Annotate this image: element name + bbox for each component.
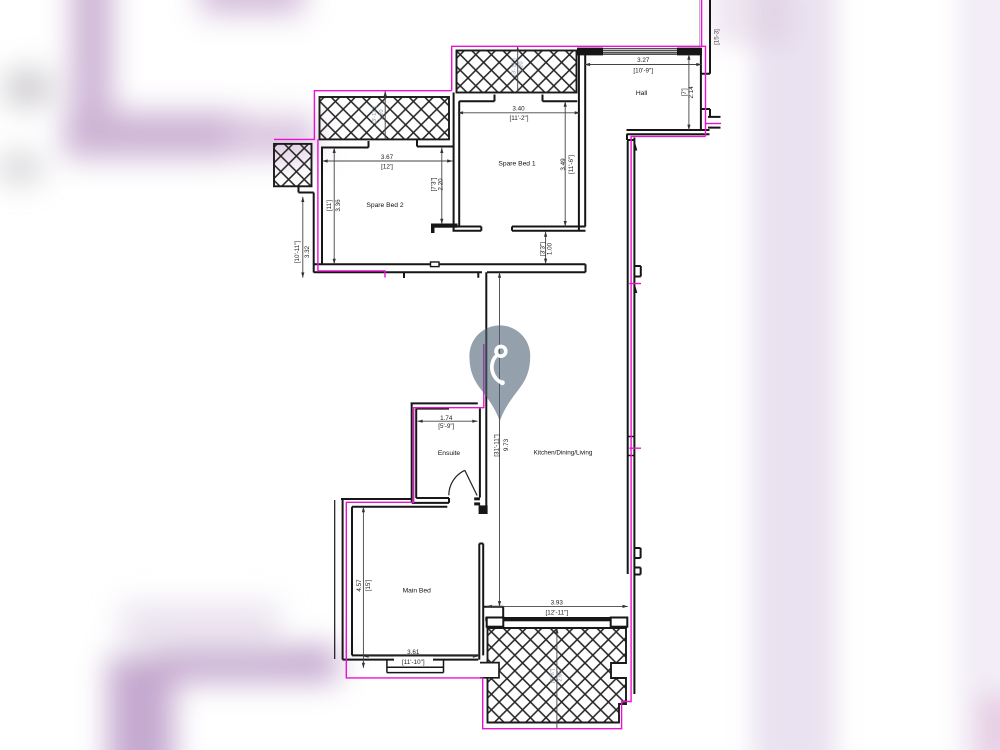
- svg-text:3.67: 3.67: [381, 154, 394, 161]
- svg-text:[11'-10"]: [11'-10"]: [402, 659, 425, 666]
- svg-text:[31'-11"]: [31'-11"]: [493, 434, 500, 457]
- svg-text:1.00: 1.00: [546, 242, 553, 255]
- svg-text:[5'-9"]: [5'-9"]: [438, 423, 454, 430]
- svg-text:[10'-11"]: [10'-11"]: [294, 240, 301, 263]
- svg-text:[15']: [15']: [365, 579, 372, 591]
- svg-text:1.20: 1.20: [519, 61, 525, 72]
- svg-text:[3'3"]: [3'3"]: [539, 242, 546, 256]
- svg-text:2.14: 2.14: [688, 86, 695, 99]
- svg-text:[7'3"]: [7'3"]: [431, 177, 438, 191]
- svg-text:[15-3]: [15-3]: [714, 29, 721, 45]
- svg-text:3.49: 3.49: [560, 158, 567, 171]
- svg-text:Hall: Hall: [636, 90, 648, 97]
- svg-text:3.61: 3.61: [407, 649, 420, 656]
- svg-text:Ensuite: Ensuite: [438, 450, 461, 457]
- svg-text:3.32: 3.32: [304, 245, 311, 258]
- svg-text:[8'-8"]: [8'-8"]: [550, 668, 556, 683]
- svg-text:9.73: 9.73: [503, 438, 510, 451]
- svg-text:3.93: 3.93: [551, 599, 564, 606]
- svg-text:[11'-2"]: [11'-2"]: [509, 115, 528, 122]
- svg-text:Main Bed: Main Bed: [403, 588, 432, 595]
- svg-text:Kitchen/Dining/Living: Kitchen/Dining/Living: [534, 449, 593, 456]
- svg-text:4.57: 4.57: [356, 579, 363, 592]
- svg-text:3.40: 3.40: [512, 106, 525, 113]
- svg-text:3.27: 3.27: [637, 57, 650, 64]
- svg-text:[3'-11"]: [3'-11"]: [511, 58, 517, 76]
- svg-text:[12'-11"]: [12'-11"]: [546, 610, 569, 617]
- svg-text:3.36: 3.36: [335, 199, 342, 212]
- svg-text:Spare Bed 1: Spare Bed 1: [498, 161, 535, 168]
- svg-text:[3'-11"]: [3'-11"]: [372, 106, 378, 124]
- svg-text:[11'-6"]: [11'-6"]: [568, 155, 575, 174]
- svg-text:1.20: 1.20: [379, 109, 385, 120]
- svg-text:[12']: [12']: [381, 164, 393, 171]
- svg-text:[7']: [7']: [681, 88, 688, 96]
- svg-text:2.20: 2.20: [438, 178, 445, 191]
- svg-text:[11']: [11']: [326, 200, 333, 211]
- svg-text:[10'-9"]: [10'-9"]: [633, 67, 653, 74]
- svg-text:Spare Bed 2: Spare Bed 2: [366, 202, 403, 209]
- svg-text:1.74: 1.74: [440, 415, 453, 422]
- svg-text:2.65: 2.65: [558, 670, 564, 681]
